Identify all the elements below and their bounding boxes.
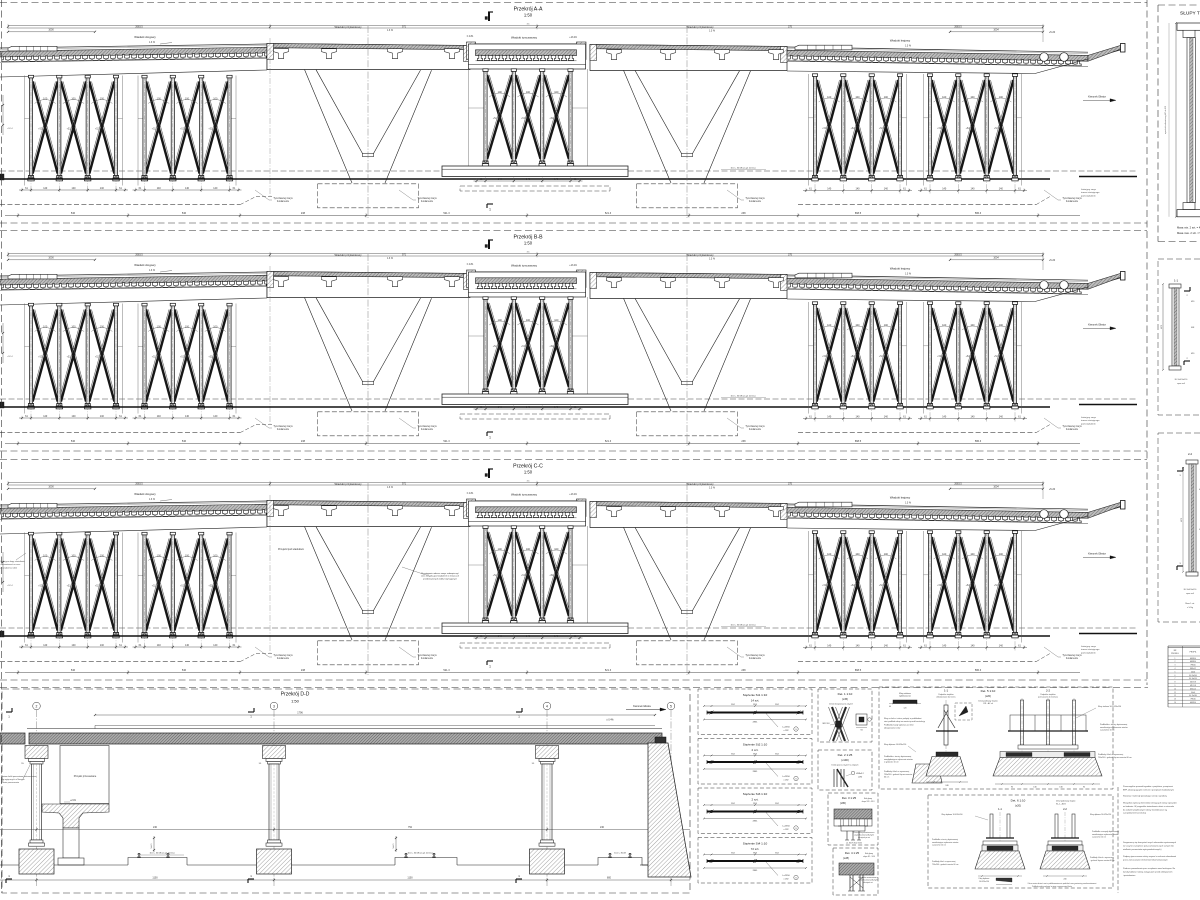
svg-text:100: 100 xyxy=(157,98,162,101)
svg-text:Wiadukt przyłamkowy: Wiadukt przyłamkowy xyxy=(334,253,362,257)
svg-text:Tymczasowy zarys: Tymczasowy zarys xyxy=(745,197,765,200)
svg-text:Kliny na belce i siatce podpią: Kliny na belce i siatce podpiąć w podkła… xyxy=(884,717,922,720)
svg-text:Tymczasowy zarys: Tymczasowy zarys xyxy=(273,425,293,428)
svg-text:100: 100 xyxy=(970,553,975,556)
svg-text:wysokość całkowita wg 467 do 6: wysokość całkowita wg 467 do 610 xyxy=(1164,106,1167,134)
svg-text:± 4.81: ± 4.81 xyxy=(467,263,474,266)
svg-text:Przekrój C-C: Przekrój C-C xyxy=(513,464,543,470)
svg-text:4670: 4670 xyxy=(1181,518,1183,522)
svg-text:140: 140 xyxy=(72,187,77,190)
svg-text:140: 140 xyxy=(498,406,503,409)
svg-text:fundamentu: fundamentu xyxy=(277,657,290,660)
svg-text:2-2: 2-2 xyxy=(1063,807,1067,811)
svg-text:Det. 2 1:25: Det. 2 1:25 xyxy=(838,753,853,757)
svg-text:140: 140 xyxy=(498,635,503,638)
svg-text:100: 100 xyxy=(185,555,190,558)
svg-text:238: 238 xyxy=(741,212,746,215)
svg-text:Wiadukt przyłamkowy: Wiadukt przyłamkowy xyxy=(334,482,362,486)
svg-text:Kierunek Gliwice: Kierunek Gliwice xyxy=(1088,323,1106,326)
svg-text:Tymczasowy zarys: Tymczasowy zarys xyxy=(417,197,437,200)
svg-text:1.3 %: 1.3 % xyxy=(905,45,912,48)
svg-text:1.3 %: 1.3 % xyxy=(149,269,156,272)
svg-text:+52.1: +52.1 xyxy=(549,575,556,577)
svg-text:140: 140 xyxy=(526,406,531,409)
svg-text:Masa min. 2 szt. = 482 kg: Masa min. 2 szt. = 482 kg xyxy=(1177,226,1200,230)
svg-text:140: 140 xyxy=(827,644,832,647)
svg-text:+52.1: +52.1 xyxy=(879,128,886,130)
svg-text:586.3: 586.3 xyxy=(975,669,982,672)
svg-text:140: 140 xyxy=(157,415,162,418)
svg-text:1004: 1004 xyxy=(993,29,999,32)
svg-text:140: 140 xyxy=(856,644,861,647)
svg-text:100: 100 xyxy=(855,324,860,327)
svg-text:140: 140 xyxy=(213,415,218,418)
svg-text:1:50: 1:50 xyxy=(524,470,533,475)
svg-text:wielkości parametrów wytrzymał: wielkości parametrów wytrzymałościowych) xyxy=(1123,848,1162,851)
svg-text:868.5: 868.5 xyxy=(855,440,862,443)
svg-text:+52.1: +52.1 xyxy=(966,356,973,358)
svg-text:Tymczasowy zarys: Tymczasowy zarys xyxy=(273,197,293,200)
svg-text:140: 140 xyxy=(100,187,105,190)
svg-text:na budowie. W przypadku stwier: na budowie. W przypadku stwierdzenia róż… xyxy=(1123,805,1174,808)
svg-text:+52.1: +52.1 xyxy=(208,129,215,131)
svg-text:238: 238 xyxy=(301,212,306,215)
svg-text:140: 140 xyxy=(213,644,218,647)
svg-text:Stężenie St1 1:10: Stężenie St1 1:10 xyxy=(743,693,768,697)
svg-text:+13.49: +13.49 xyxy=(569,36,577,39)
svg-text:L=2350: L=2350 xyxy=(782,776,790,778)
svg-text:100: 100 xyxy=(554,91,559,94)
svg-text:971: 971 xyxy=(402,482,407,485)
svg-text:140: 140 xyxy=(971,644,976,647)
svg-text:238: 238 xyxy=(741,669,746,672)
svg-text:fundamentu: fundamentu xyxy=(421,200,434,203)
svg-text:7: 7 xyxy=(1175,678,1176,680)
svg-text:+52.1: +52.1 xyxy=(994,585,1001,587)
svg-text:+52.1: +52.1 xyxy=(549,346,556,348)
svg-text:ok. 80/75 Stal S235: ok. 80/75 Stal S235 xyxy=(846,842,862,845)
svg-text:750x200 - grubość warstw 60 cm: 750x200 - grubość warstw 60 cm xyxy=(932,863,959,866)
svg-text:Detal podstawy słupów: Detal podstawy słupów xyxy=(1056,800,1076,803)
svg-text:1004: 1004 xyxy=(993,257,999,260)
svg-text:140: 140 xyxy=(554,635,559,638)
svg-text:(x28): (x28) xyxy=(843,856,849,860)
svg-text:72 szt.: 72 szt. xyxy=(751,847,760,851)
svg-text:+52.1: +52.1 xyxy=(493,118,500,120)
svg-text:546: 546 xyxy=(71,669,76,672)
svg-text:+52.1: +52.1 xyxy=(493,575,500,577)
svg-text:+52.1: +52.1 xyxy=(95,357,102,359)
svg-text:1: 1 xyxy=(1175,658,1176,660)
svg-text:3: 3 xyxy=(273,704,275,708)
svg-text:Det. 4 1:25: Det. 4 1:25 xyxy=(845,851,860,855)
svg-text:1004: 1004 xyxy=(993,486,999,489)
svg-text:BL.10x150x150: BL.10x150x150 xyxy=(1175,379,1188,381)
svg-text:140: 140 xyxy=(72,415,77,418)
svg-text:10: 10 xyxy=(1174,688,1176,690)
svg-text:L=2350: L=2350 xyxy=(782,875,790,877)
svg-text:= 54 kg: = 54 kg xyxy=(1187,607,1193,609)
svg-text:546: 546 xyxy=(182,212,187,215)
svg-text:521.3: 521.3 xyxy=(443,212,450,215)
svg-text:94: 94 xyxy=(860,730,862,732)
svg-text:100: 100 xyxy=(213,98,218,101)
svg-text:9: 9 xyxy=(1175,685,1176,687)
svg-text:Stężenie St4 1:10: Stężenie St4 1:10 xyxy=(743,842,768,846)
svg-text:521.3: 521.3 xyxy=(605,212,612,215)
svg-text:+52.1: +52.1 xyxy=(38,586,45,588)
svg-text:2-2: 2-2 xyxy=(1046,689,1050,693)
svg-text:100: 100 xyxy=(970,96,975,99)
svg-text:terenu istniejącego: terenu istniejącego xyxy=(1081,191,1100,194)
svg-text:przez zamocowanie elementów le: przez zamocowanie elementów leikomontażo… xyxy=(1123,858,1168,861)
svg-text:M12 8.8: M12 8.8 xyxy=(823,723,830,725)
svg-text:1.3 %: 1.3 % xyxy=(387,257,394,260)
svg-text:Wiadukt krajowy: Wiadukt krajowy xyxy=(890,39,911,43)
svg-text:971: 971 xyxy=(402,253,407,256)
svg-text:fundamentu: fundamentu xyxy=(1066,657,1079,660)
svg-text:+52.1: +52.1 xyxy=(521,118,528,120)
svg-text:kanały kablowe należy zastępcz: kanały kablowe należy zastępczych przed … xyxy=(1123,870,1173,873)
svg-text:zdemontować na czas: zdemontować na czas xyxy=(1,563,21,566)
svg-text:100: 100 xyxy=(498,548,503,551)
svg-text:10.0/20x150: 10.0/20x150 xyxy=(979,881,989,883)
svg-text:1.3 %: 1.3 % xyxy=(709,258,716,261)
svg-text:Podkłady, klach z wyrzuconej: Podkłady, klach z wyrzuconej xyxy=(932,861,956,863)
svg-text:Wiadukt drogowy: Wiadukt drogowy xyxy=(134,35,156,39)
svg-text:L=2350: L=2350 xyxy=(782,826,790,828)
svg-text:Drogocenną się skorzystać inny: Drogocenną się skorzystać innych element… xyxy=(1123,841,1176,844)
svg-text:100: 100 xyxy=(498,91,503,94)
svg-text:100: 100 xyxy=(43,555,48,558)
svg-text:S11 - A2 zk: S11 - A2 zk xyxy=(983,702,993,705)
svg-text:+52.1: +52.1 xyxy=(95,586,102,588)
svg-text:546: 546 xyxy=(182,669,187,672)
svg-text:+52.1: +52.1 xyxy=(208,586,215,588)
svg-text:Podpórka stojaków: Podpórka stojaków xyxy=(938,693,954,696)
svg-text:M20: M20 xyxy=(1191,301,1194,303)
svg-text:Ø48x3.2: Ø48x3.2 xyxy=(856,773,864,775)
svg-text:140: 140 xyxy=(999,415,1004,418)
svg-text:1:50: 1:50 xyxy=(524,13,533,18)
svg-text:+52.1: +52.1 xyxy=(493,346,500,348)
svg-text:Kliny stalowe 10.20/20x150: Kliny stalowe 10.20/20x150 xyxy=(1098,705,1121,708)
svg-text:95: 95 xyxy=(1083,787,1085,789)
svg-text:Stężenie St2 1:10: Stężenie St2 1:10 xyxy=(743,743,768,747)
svg-text:1100: 1100 xyxy=(407,877,413,880)
svg-text:+52.1: +52.1 xyxy=(208,357,215,359)
svg-text:238: 238 xyxy=(301,669,306,672)
svg-text:Wiadukt drogowy: Wiadukt drogowy xyxy=(134,492,156,496)
svg-text:+52.1: +52.1 xyxy=(180,357,187,359)
svg-text:100: 100 xyxy=(71,555,76,558)
svg-text:zlokalizowane do terenu: zlokalizowane do terenu xyxy=(936,696,955,699)
svg-text:Podkłady i klach z wyrzuconej: Podkłady i klach z wyrzuconej xyxy=(1090,857,1114,859)
svg-text:+52.1: +52.1 xyxy=(937,585,944,587)
svg-text:240: 240 xyxy=(1064,878,1067,880)
svg-text:100: 100 xyxy=(185,98,190,101)
svg-text:Det. 5 1:10: Det. 5 1:10 xyxy=(981,689,996,693)
svg-text:140: 140 xyxy=(942,644,947,647)
svg-text:Det. 1 1:10: Det. 1 1:10 xyxy=(838,692,853,696)
svg-text:1:50: 1:50 xyxy=(291,699,300,704)
svg-text:części tłocznej wzdłużnymi: części tłocznej wzdłużnymi xyxy=(858,879,879,882)
svg-text:Ø16x1.5: Ø16x1.5 xyxy=(1190,688,1196,690)
svg-text:spaw a=4: spaw a=4 xyxy=(1186,593,1194,595)
svg-text:100: 100 xyxy=(100,98,105,101)
svg-text:pod wiaduktem: pod wiaduktem xyxy=(1081,422,1096,425)
svg-text:100: 100 xyxy=(554,548,559,551)
svg-text:(x20): (x20) xyxy=(1015,804,1021,808)
svg-text:+52.1: +52.1 xyxy=(38,129,45,131)
svg-text:140: 140 xyxy=(971,187,976,190)
svg-text:+52.1: +52.1 xyxy=(152,129,159,131)
svg-text:+52.1: +52.1 xyxy=(966,128,973,130)
svg-text:95: 95 xyxy=(1011,787,1013,789)
svg-text:100: 100 xyxy=(999,324,1004,327)
svg-text:100: 100 xyxy=(498,319,503,322)
svg-text:z poziomie 10 cm: z poziomie 10 cm xyxy=(932,845,946,847)
svg-text:2: 2 xyxy=(1175,661,1176,663)
svg-text:w grubości 10 cm: w grubości 10 cm xyxy=(884,761,899,764)
svg-text:Tymczasowy zarys: Tymczasowy zarys xyxy=(1062,654,1082,657)
svg-text:Kliny dębowe: Kliny dębowe xyxy=(979,878,990,880)
svg-text:± 4.81: ± 4.81 xyxy=(467,492,474,495)
svg-text:+52.4: +52.4 xyxy=(7,128,13,130)
svg-text:10.0 + 30.08 (za gł. terenu): 10.0 + 30.08 (za gł. terenu) xyxy=(730,623,755,626)
svg-text:+52.1: +52.1 xyxy=(994,356,1001,358)
svg-text:140: 140 xyxy=(185,415,190,418)
svg-text:BL.20x200: BL.20x200 xyxy=(1189,675,1197,677)
svg-text:140: 140 xyxy=(942,415,947,418)
svg-text:Podkładka z zespoły dystansowe: Podkładka z zespoły dystansowej xyxy=(1092,830,1119,833)
svg-text:Poziom belki pomostowej zdemon: Poziom belki pomostowej zdemontować xyxy=(1,775,36,778)
svg-text:fundamentu: fundamentu xyxy=(749,657,762,660)
svg-text:HEB300: HEB300 xyxy=(1190,661,1196,663)
svg-text:Kierunek Gliwice: Kierunek Gliwice xyxy=(1088,95,1106,98)
svg-text:140: 140 xyxy=(884,415,889,418)
svg-text:Przekrój A-A: Przekrój A-A xyxy=(514,7,543,13)
svg-text:BHP, obowiązującymi normami i: BHP, obowiązującymi normami i przepisami… xyxy=(1123,789,1174,791)
svg-text:5: 5 xyxy=(1175,671,1176,673)
svg-text:Tymczasowy zarys: Tymczasowy zarys xyxy=(745,425,765,428)
svg-text:Detal oparcia stężeń na słupac: Detal oparcia stężeń na słupach xyxy=(832,764,859,767)
svg-text:fundamentu: fundamentu xyxy=(1066,428,1079,431)
svg-text:Podkłady i klach z wyrzuconej: Podkłady i klach z wyrzuconej xyxy=(884,770,910,773)
svg-text:+52.1: +52.1 xyxy=(67,357,74,359)
svg-text:546: 546 xyxy=(71,212,76,215)
svg-text:Stal głowy: Stal głowy xyxy=(865,852,873,855)
svg-text:Rusztowanie robocze zanyz zabe: Rusztowanie robocze zanyz zabezpieczyć xyxy=(421,572,458,575)
svg-text:1.3 %: 1.3 % xyxy=(905,273,912,276)
svg-text:1.3 %: 1.3 % xyxy=(387,29,394,32)
svg-text:obciążeń osi: obciążeń osi xyxy=(863,882,873,884)
svg-text:+52.1: +52.1 xyxy=(521,575,528,577)
svg-text:fundamentu: fundamentu xyxy=(421,428,434,431)
svg-text:586.3: 586.3 xyxy=(975,440,982,443)
svg-text:BL.10x150x150: BL.10x150x150 xyxy=(1184,589,1197,591)
svg-text:spaw a=4: spaw a=4 xyxy=(1177,383,1185,385)
svg-text:+5.20: +5.20 xyxy=(1049,31,1056,34)
svg-text:z poziomie 10 cm: z poziomie 10 cm xyxy=(1092,837,1106,839)
svg-text:2861: 2861 xyxy=(753,870,759,872)
svg-text:Tymczasowy zarys: Tymczasowy zarys xyxy=(273,654,293,657)
svg-text:100: 100 xyxy=(71,98,76,101)
svg-text:słupa S1 - S10: słupa S1 - S10 xyxy=(863,856,875,858)
svg-text:4: 4 xyxy=(1175,668,1176,670)
svg-text:40: 40 xyxy=(889,706,891,708)
svg-text:2683.5: 2683.5 xyxy=(954,253,962,256)
svg-text:Przekrój B-B: Przekrój B-B xyxy=(513,235,543,241)
svg-text:BL.15x180: BL.15x180 xyxy=(1189,695,1197,697)
svg-text:+52.1: +52.1 xyxy=(851,356,858,358)
svg-text:10.0 + 30.08: 10.0 + 30.08 xyxy=(614,853,626,855)
svg-text:100: 100 xyxy=(855,553,860,556)
svg-text:2683.5: 2683.5 xyxy=(954,482,962,485)
svg-text:z poziomie 10 cm: z poziomie 10 cm xyxy=(1100,730,1115,732)
svg-text:Wiadukt krajowy: Wiadukt krajowy xyxy=(890,496,911,500)
svg-text:obciążeń po osi: obciążeń po osi xyxy=(858,837,870,839)
svg-text:Wiadukt przyłamkowy: Wiadukt przyłamkowy xyxy=(686,25,714,29)
svg-text:M20 8.8: M20 8.8 xyxy=(1190,682,1196,684)
svg-text:1-1: 1-1 xyxy=(1174,279,1178,283)
svg-text:100: 100 xyxy=(213,326,218,329)
svg-text:IPE200: IPE200 xyxy=(1190,665,1195,667)
svg-text:± 4.81: ± 4.81 xyxy=(467,35,474,38)
svg-text:Istniejące słupy oświetlenia: Istniejące słupy oświetlenia xyxy=(1,560,26,563)
svg-text:140: 140 xyxy=(971,415,976,418)
svg-text:1.3 %: 1.3 % xyxy=(149,498,156,501)
svg-text:+52.1: +52.1 xyxy=(937,356,944,358)
svg-text:słupa S11 - S13: słupa S11 - S13 xyxy=(862,801,875,803)
svg-text:750x200 - grubość łączna warst: 750x200 - grubość łączna warstw xyxy=(884,773,913,776)
svg-text:546: 546 xyxy=(71,440,76,443)
svg-text:Przesuwka poliuretanowa w: Przesuwka poliuretanowa w xyxy=(854,831,876,834)
svg-text:140: 140 xyxy=(185,644,190,647)
svg-text:Detal podstawy słupów: Detal podstawy słupów xyxy=(978,700,998,703)
svg-text:HEB200: HEB200 xyxy=(1190,702,1196,704)
svg-text:niż uczynić w projekcie przy z: niż uczynić w projekcie przy zachowaniu … xyxy=(1123,845,1175,847)
svg-text:100: 100 xyxy=(554,319,559,322)
svg-text:fundamentu: fundamentu xyxy=(421,657,434,660)
svg-text:Przesuwka wzmocniona w: Przesuwka wzmocniona w xyxy=(858,876,879,879)
svg-text:60 cm: 60 cm xyxy=(884,777,890,779)
svg-text:i posiadaniem: i posiadaniem xyxy=(1123,875,1136,877)
svg-text:Wszystkie wymiary elementów is: Wszystkie wymiary elementów istniejących… xyxy=(1123,802,1177,805)
svg-text:Kierunek Gliwice: Kierunek Gliwice xyxy=(1088,552,1106,555)
svg-text:100: 100 xyxy=(827,553,832,556)
svg-text:Kliny dębowe 10.0/20x150: Kliny dębowe 10.0/20x150 xyxy=(884,744,906,746)
svg-text:Tymczasowy zarys: Tymczasowy zarys xyxy=(417,654,437,657)
svg-text:140: 140 xyxy=(498,178,503,181)
svg-text:terenu istniejącego: terenu istniejącego xyxy=(1081,648,1100,651)
svg-text:Podpory tymczasowe należy usyw: Podpory tymczasowe należy usywać w zakre… xyxy=(1123,855,1176,858)
svg-text:Wiadukt krajowy: Wiadukt krajowy xyxy=(890,267,911,271)
svg-text:1.3 %: 1.3 % xyxy=(709,30,716,33)
svg-text:14 szt.: 14 szt. xyxy=(751,699,760,703)
svg-text:1.3 %: 1.3 % xyxy=(709,487,716,490)
svg-text:fundamentu: fundamentu xyxy=(749,200,762,203)
svg-text:Kliny dębowe 10.0/20x150: Kliny dębowe 10.0/20x150 xyxy=(941,814,962,816)
svg-text:130: 130 xyxy=(1033,787,1036,789)
svg-text:140: 140 xyxy=(856,415,861,418)
svg-text:Podkładka z tarcicy dystansowe: Podkładka z tarcicy dystansowej xyxy=(1100,723,1128,726)
svg-text:Wiadukt przyłamkowy: Wiadukt przyłamkowy xyxy=(334,25,362,29)
svg-text:100: 100 xyxy=(100,555,105,558)
svg-text:100: 100 xyxy=(942,553,947,556)
svg-text:+52.1: +52.1 xyxy=(851,585,858,587)
svg-text:140: 140 xyxy=(554,178,559,181)
svg-text:140: 140 xyxy=(526,635,531,638)
svg-text:wyklinowanie: wyklinowanie xyxy=(899,696,912,698)
svg-text:+13.49: +13.49 xyxy=(569,493,577,496)
svg-text:100: 100 xyxy=(100,326,105,329)
svg-text:868.5: 868.5 xyxy=(855,212,862,215)
svg-text:+52.1: +52.1 xyxy=(521,346,528,348)
svg-text:przedstawionych wzdłuż wymagan: przedstawionych wzdłuż wymaganych xyxy=(423,577,457,580)
svg-text:L=2350: L=2350 xyxy=(782,727,790,729)
svg-text:4: 4 xyxy=(546,704,548,708)
svg-text:Przęsło przesuwane: Przęsło przesuwane xyxy=(74,775,97,778)
svg-text:120: 120 xyxy=(904,708,907,710)
svg-text:Podkładka z tarcicy dystansowe: Podkładka z tarcicy dystansowej xyxy=(932,838,958,841)
svg-text:2 szt.: 2 szt. xyxy=(752,798,759,802)
svg-text:140: 140 xyxy=(827,415,832,418)
svg-text:+5.20: +5.20 xyxy=(1049,259,1056,262)
svg-text:140: 140 xyxy=(999,644,1004,647)
svg-text:140: 140 xyxy=(43,187,48,190)
svg-text:Poszczególne prowadź zgodnie z: Poszczególne prowadź zgodnie z projektem… xyxy=(1123,785,1173,788)
svg-text:375: 375 xyxy=(788,482,793,485)
svg-text:130: 130 xyxy=(1059,787,1062,789)
svg-text:+52.1: +52.1 xyxy=(38,357,45,359)
svg-text:238: 238 xyxy=(301,440,306,443)
svg-text:Masa max. 2 szt. = 540 kg: Masa max. 2 szt. = 540 kg xyxy=(1177,231,1200,235)
svg-text:1-1: 1-1 xyxy=(998,807,1002,811)
svg-text:1.3 %: 1.3 % xyxy=(387,486,394,489)
svg-text:868.5: 868.5 xyxy=(855,669,862,672)
svg-text:Przejazd pod wiaduktem: Przejazd pod wiaduktem xyxy=(278,548,304,551)
svg-text:Ø48x3.2: Ø48x3.2 xyxy=(1190,668,1196,670)
svg-text:(x80): (x80) xyxy=(840,801,846,805)
svg-text:Podkłady i klach z wyrzuconej: Podkłady i klach z wyrzuconej xyxy=(1098,753,1124,756)
svg-text:PROFILU: PROFILU xyxy=(1171,653,1179,655)
svg-text:+52.1: +52.1 xyxy=(180,586,187,588)
svg-text:140: 140 xyxy=(856,187,861,190)
svg-text:Podkładka z tarcicy dystansowe: Podkładka z tarcicy dystansowej xyxy=(884,755,912,758)
svg-text:586.3: 586.3 xyxy=(975,212,982,215)
svg-text:+52.1: +52.1 xyxy=(152,357,159,359)
svg-text:+52.4: +52.4 xyxy=(7,585,13,587)
svg-text:140: 140 xyxy=(884,187,889,190)
svg-text:2: 2 xyxy=(36,704,38,708)
svg-text:+52.1: +52.1 xyxy=(67,586,74,588)
svg-text:HEB300: HEB300 xyxy=(1190,658,1196,660)
svg-text:- grubość łączna warstw 60 cm: - grubość łączna warstw 60 cm xyxy=(1090,859,1115,862)
svg-text:Podpórka stojaków: Podpórka stojaków xyxy=(1040,693,1056,696)
svg-text:14: 14 xyxy=(1174,702,1176,704)
svg-text:2 szt.: 2 szt. xyxy=(752,748,759,752)
svg-text:140: 140 xyxy=(827,187,832,190)
svg-text:140: 140 xyxy=(157,187,162,190)
svg-text:240: 240 xyxy=(600,826,605,829)
svg-text:100: 100 xyxy=(827,324,832,327)
svg-text:uwzględniająca wykonanie wiaró: uwzględniająca wykonanie wiarów xyxy=(884,758,913,761)
svg-text:100: 100 xyxy=(884,96,889,99)
svg-text:10.0 + 30.08 (za gł. terenu): 10.0 + 30.08 (za gł. terenu) xyxy=(730,166,755,169)
svg-text:521.3: 521.3 xyxy=(605,669,612,672)
svg-text:Tymczasowy zarys: Tymczasowy zarys xyxy=(1062,425,1082,428)
